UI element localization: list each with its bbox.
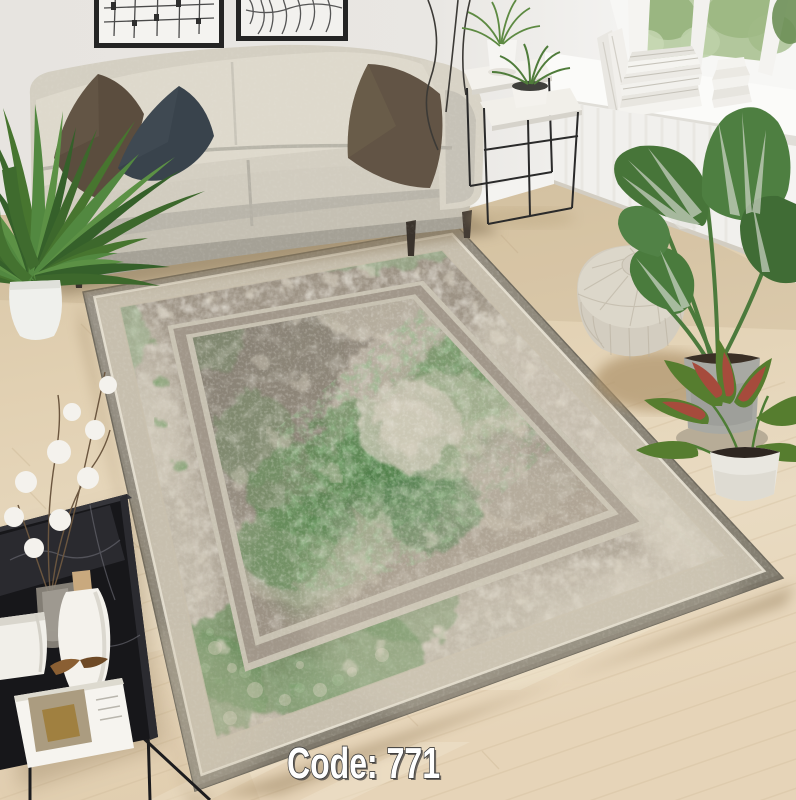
svg-text:Code: 771: Code: 771 <box>287 739 440 788</box>
